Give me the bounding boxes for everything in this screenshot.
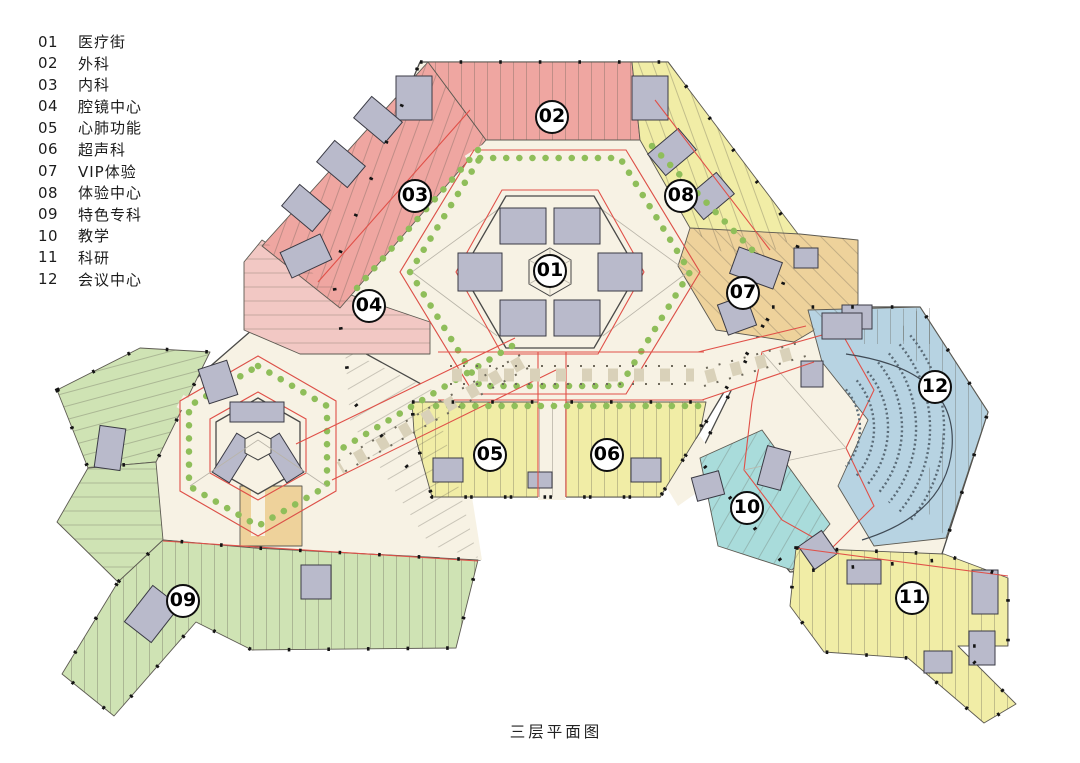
legend-label: 特色专科	[78, 204, 142, 225]
legend-label: 内科	[78, 74, 110, 95]
zone-badge-01: 01	[533, 254, 567, 288]
legend-row: 02外科	[38, 56, 142, 71]
zone-badge-12: 12	[918, 370, 952, 404]
legend-num: 11	[38, 248, 68, 266]
legend-row: 05心肺功能	[38, 120, 142, 135]
legend-num: 01	[38, 33, 68, 51]
legend-label: 医疗街	[78, 31, 126, 52]
legend-num: 04	[38, 97, 68, 115]
zone-badge-05: 05	[473, 438, 507, 472]
legend-num: 10	[38, 227, 68, 245]
legend-row: 07VIP体验	[38, 164, 142, 179]
legend-num: 09	[38, 205, 68, 223]
legend-row: 09特色专科	[38, 207, 142, 222]
legend-row: 04腔镜中心	[38, 99, 142, 114]
zone-badge-06: 06	[590, 438, 624, 472]
legend-label: 体验中心	[78, 182, 142, 203]
legend-label: 超声科	[78, 139, 126, 160]
legend-label: 教学	[78, 225, 110, 246]
legend-row: 11科研	[38, 250, 142, 265]
legend-row: 08体验中心	[38, 185, 142, 200]
legend-row: 06超声科	[38, 142, 142, 157]
legend-label: VIP体验	[78, 161, 137, 182]
zone-badge-09: 09	[166, 584, 200, 618]
legend-num: 12	[38, 270, 68, 288]
legend-num: 07	[38, 162, 68, 180]
zone-badge-10: 10	[730, 491, 764, 525]
legend-num: 02	[38, 54, 68, 72]
legend-label: 科研	[78, 247, 110, 268]
plan-caption: 三层平面图	[0, 720, 1080, 742]
legend-row: 01医疗街	[38, 34, 142, 49]
zone-badge-04: 04	[352, 289, 386, 323]
legend-label: 外科	[78, 53, 110, 74]
zone-badge-07: 07	[726, 276, 760, 310]
legend-row: 12会议中心	[38, 272, 142, 287]
legend-label: 心肺功能	[78, 117, 142, 138]
zone-badge-02: 02	[535, 100, 569, 134]
floor-plan-page: 01医疗街02外科03内科04腔镜中心05心肺功能06超声科07VIP体验08体…	[0, 0, 1080, 763]
legend-label: 会议中心	[78, 269, 142, 290]
legend-num: 05	[38, 119, 68, 137]
legend-label: 腔镜中心	[78, 96, 142, 117]
zone-badge-11: 11	[895, 581, 929, 615]
legend: 01医疗街02外科03内科04腔镜中心05心肺功能06超声科07VIP体验08体…	[38, 34, 142, 287]
legend-num: 03	[38, 76, 68, 94]
legend-row: 10教学	[38, 228, 142, 243]
zone-badge-08: 08	[664, 179, 698, 213]
legend-num: 08	[38, 184, 68, 202]
legend-num: 06	[38, 140, 68, 158]
legend-row: 03内科	[38, 77, 142, 92]
zone-badge-03: 03	[398, 179, 432, 213]
